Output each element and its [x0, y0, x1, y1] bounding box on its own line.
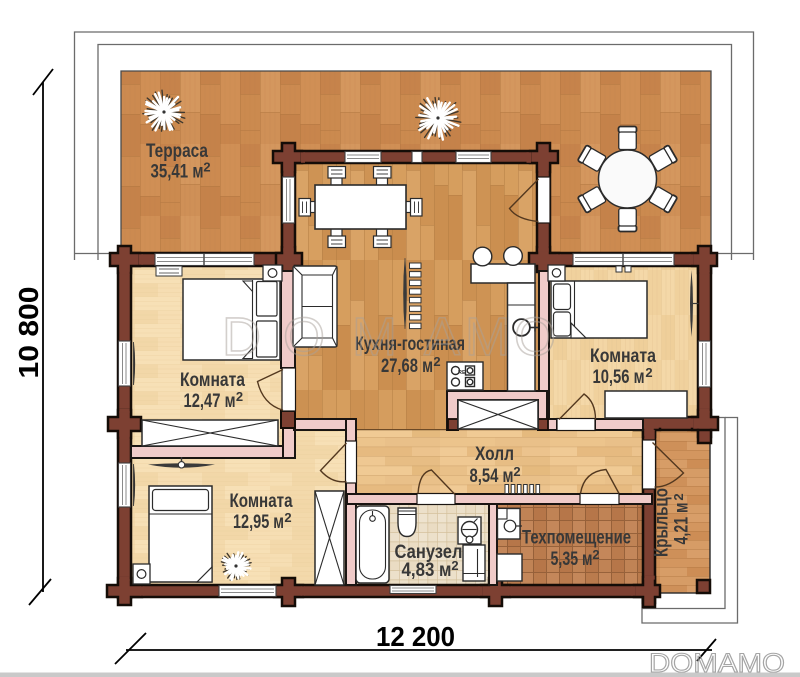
svg-text:10 800: 10 800	[13, 287, 44, 379]
svg-text:Комната: Комната	[230, 490, 293, 512]
svg-text:2: 2	[284, 510, 291, 525]
svg-text:Холл: Холл	[475, 443, 514, 465]
svg-text:4,21 м: 4,21 м	[671, 503, 693, 545]
svg-text:10,56 м: 10,56 м	[593, 366, 645, 388]
svg-text:2: 2	[203, 160, 210, 175]
svg-text:2: 2	[451, 558, 458, 573]
svg-text:2: 2	[592, 547, 599, 562]
svg-text:2: 2	[513, 464, 520, 479]
svg-text:Техпомещение: Техпомещение	[522, 527, 631, 549]
svg-text:12,47 м: 12,47 м	[184, 390, 236, 412]
svg-text:2: 2	[236, 389, 243, 404]
svg-text:12 200: 12 200	[376, 621, 455, 652]
svg-text:2: 2	[671, 493, 686, 500]
svg-text:8,54 м: 8,54 м	[470, 465, 514, 487]
svg-text:5,35 м: 5,35 м	[551, 548, 593, 570]
svg-text:2: 2	[645, 365, 652, 380]
svg-text:35,41 м: 35,41 м	[151, 161, 204, 183]
svg-text:Терраса: Терраса	[146, 140, 208, 162]
svg-text:Комната: Комната	[180, 369, 245, 391]
svg-text:4,83 м: 4,83 м	[402, 559, 452, 581]
svg-text:RE: RE	[458, 370, 466, 376]
svg-text:Комната: Комната	[590, 345, 656, 367]
svg-text:Крыльцо: Крыльцо	[651, 488, 673, 557]
svg-text:12,95 м: 12,95 м	[233, 511, 284, 533]
